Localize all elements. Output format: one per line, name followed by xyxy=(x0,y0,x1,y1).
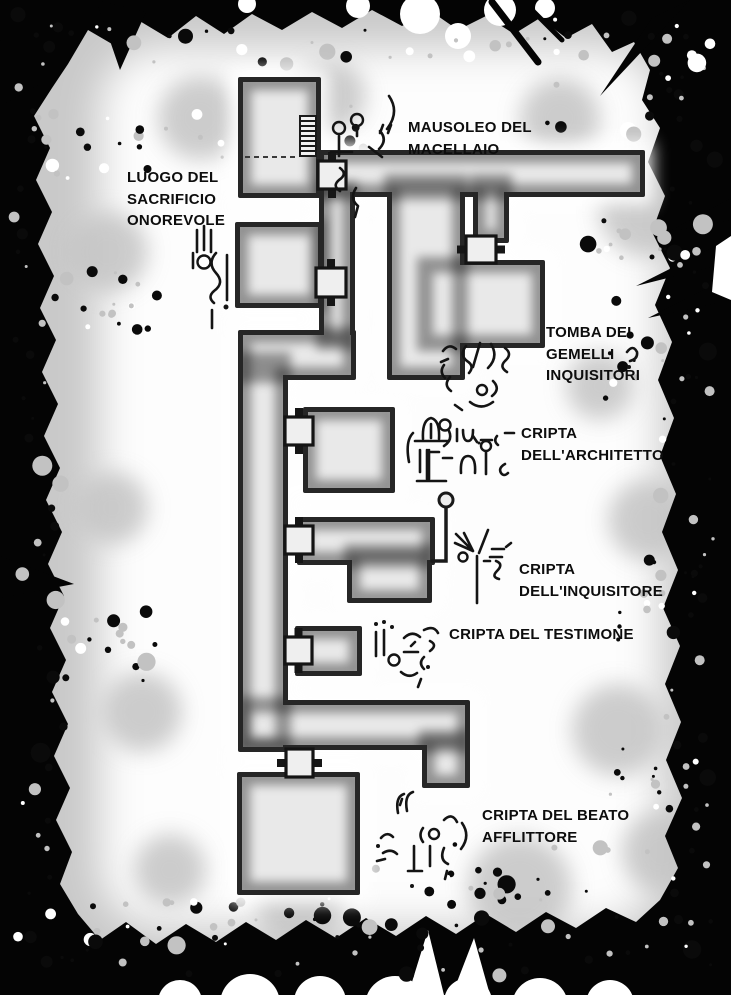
label-line: AFFLITTORE xyxy=(482,827,629,849)
label-line: TOMBA DEI xyxy=(546,322,640,344)
label-mausoleo-del-macellaio: MAUSOLEO DEL MACELLAIO xyxy=(408,117,532,160)
label-line: INQUISITORI xyxy=(546,365,640,387)
label-line: CRIPTA xyxy=(519,559,663,581)
room-architetto xyxy=(308,412,390,488)
label-tomba-dei-gemelli-inquisitori: TOMBA DEI GEMELLI INQUISITORI xyxy=(546,322,640,387)
label-line: ONOREVOLE xyxy=(127,210,225,232)
label-line: CRIPTA DEL TESTIMONE xyxy=(449,624,634,646)
dungeon-map-page: MAUSOLEO DEL MACELLAIO LUOGO DEL SACRIFI… xyxy=(0,0,731,995)
label-cripta-dell-inquisitore: CRIPTA DELL'INQUISITORE xyxy=(519,559,663,602)
label-line: CRIPTA DEL BEATO xyxy=(482,805,629,827)
stairs-icon xyxy=(300,116,316,156)
label-cripta-del-beato-afflittore: CRIPTA DEL BEATO AFFLITTORE xyxy=(482,805,629,848)
label-line: DELL'INQUISITORE xyxy=(519,581,663,603)
label-luogo-del-sacrificio-onorevole: LUOGO DEL SACRIFICIO ONOREVOLE xyxy=(127,167,225,232)
label-line: DELL'ARCHITETTO xyxy=(521,445,664,467)
label-line: CRIPTA xyxy=(521,423,664,445)
label-line: MACELLAIO xyxy=(408,139,532,161)
label-cripta-del-testimone: CRIPTA DEL TESTIMONE xyxy=(449,624,634,646)
room-beato xyxy=(242,777,355,890)
room-tomba xyxy=(425,265,540,343)
label-line: MAUSOLEO DEL xyxy=(408,117,532,139)
label-line: GEMELLI xyxy=(546,344,640,366)
label-line: LUOGO DEL xyxy=(127,167,225,189)
label-cripta-dell-architetto: CRIPTA DELL'ARCHITETTO xyxy=(521,423,664,466)
room-sacrificio xyxy=(240,227,318,303)
label-line: SACRIFICIO xyxy=(127,189,225,211)
